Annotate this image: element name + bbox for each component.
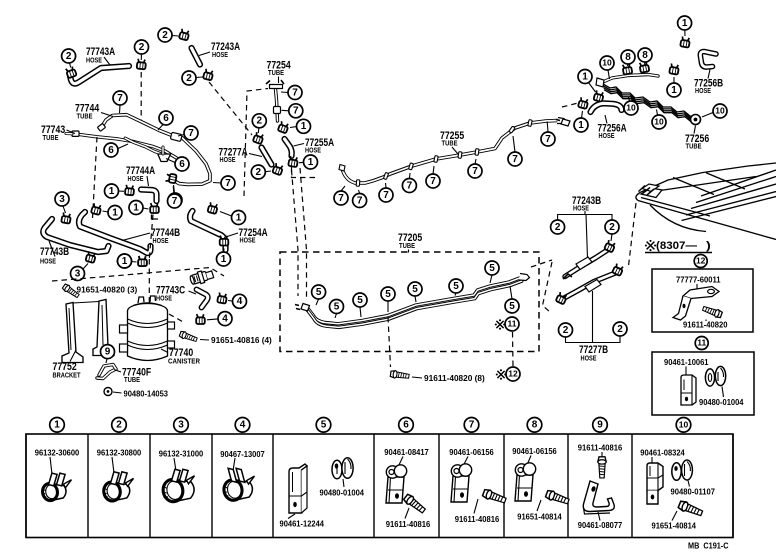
svg-text:91651-40816 (4): 91651-40816 (4) [211,335,272,345]
svg-text:10: 10 [602,58,612,68]
svg-text:7: 7 [469,420,475,431]
svg-text:1: 1 [133,202,139,213]
svg-text:8: 8 [642,50,648,61]
svg-text:10: 10 [626,103,636,113]
svg-text:7: 7 [172,196,178,207]
svg-text:96132-31000: 96132-31000 [159,449,204,459]
svg-text:TUBE: TUBE [124,375,140,384]
svg-text:5: 5 [385,289,391,300]
svg-text:9: 9 [597,420,603,431]
svg-text:11: 11 [697,338,706,348]
svg-text:MB C191-C: MB C191-C [688,541,729,551]
svg-text:HOSE: HOSE [599,131,615,140]
svg-text:10: 10 [679,420,689,430]
svg-text:2: 2 [609,222,615,233]
svg-text:11: 11 [508,319,517,329]
svg-text:3: 3 [75,268,81,279]
svg-text:7: 7 [512,154,518,165]
svg-text:7: 7 [357,195,363,206]
svg-text:3: 3 [59,194,65,205]
svg-text:91611-40820: 91611-40820 [683,320,728,330]
svg-text:91651-40820 (3): 91651-40820 (3) [77,285,138,295]
svg-text:8: 8 [532,420,538,431]
svg-text:1: 1 [671,85,677,96]
svg-text:5: 5 [453,281,459,292]
svg-text:HOSE: HOSE [220,155,236,164]
svg-text:1: 1 [582,71,588,82]
svg-text:90461-10061: 90461-10061 [664,357,709,367]
svg-text:HOSE: HOSE [128,174,144,183]
svg-text:1: 1 [109,186,115,197]
svg-text:HOSE: HOSE [153,236,169,245]
svg-text:96132-30600: 96132-30600 [35,448,80,458]
svg-text:4: 4 [237,296,243,307]
svg-text:6: 6 [163,113,169,124]
svg-text:1: 1 [221,254,227,265]
svg-text:90461-08324: 90461-08324 [640,448,685,458]
svg-text:2: 2 [257,116,263,127]
svg-text:90467-13007: 90467-13007 [220,449,265,459]
svg-text:8: 8 [625,52,631,63]
svg-text:7: 7 [292,87,298,98]
svg-text:5: 5 [489,263,495,274]
svg-text:91611-40816: 91611-40816 [578,443,623,453]
svg-text:1: 1 [301,121,307,132]
svg-text:1: 1 [112,207,118,218]
svg-text:7: 7 [472,166,478,177]
svg-text:5: 5 [357,295,363,306]
svg-text:9: 9 [105,347,111,358]
svg-text:HOSE: HOSE [240,236,256,245]
svg-text:HOSE: HOSE [305,146,321,155]
svg-text:7: 7 [117,93,123,104]
svg-text:(8307—: (8307— [656,240,697,252]
svg-text:91651-40814: 91651-40814 [652,521,697,531]
svg-text:TUBE: TUBE [43,133,59,142]
svg-text:TUBE: TUBE [77,112,93,121]
svg-text:2: 2 [555,222,561,233]
svg-text:10: 10 [654,117,664,127]
svg-text:7: 7 [225,178,231,189]
svg-text:HOSE: HOSE [86,56,102,65]
svg-text:2: 2 [66,51,72,62]
svg-text:7: 7 [430,176,436,187]
svg-text:2: 2 [139,42,145,53]
svg-text:91611-40816: 91611-40816 [455,514,500,524]
svg-text:5: 5 [321,420,327,431]
svg-text:90480-01004: 90480-01004 [699,397,744,407]
svg-text:): ) [706,240,711,252]
svg-text:90461-06156: 90461-06156 [512,446,557,456]
svg-text:3: 3 [178,420,184,431]
svg-text:90480-01004: 90480-01004 [320,488,365,498]
svg-text:96132-30800: 96132-30800 [97,448,142,458]
svg-text:2: 2 [256,167,262,178]
svg-text:5: 5 [316,287,322,298]
svg-text:CANISTER: CANISTER [168,357,201,366]
svg-text:7: 7 [188,128,194,139]
svg-text:4: 4 [222,314,228,325]
svg-text:6: 6 [403,420,409,431]
svg-text:5: 5 [509,301,515,312]
svg-text:BRACKET: BRACKET [53,371,81,380]
svg-text:HOSE: HOSE [212,50,228,59]
svg-text:TUBE: TUBE [399,241,415,250]
svg-text:TUBE: TUBE [268,68,284,77]
svg-text:2: 2 [186,73,192,84]
svg-text:5: 5 [412,284,418,295]
svg-text:10: 10 [715,106,725,116]
svg-text:91651-40814: 91651-40814 [517,512,562,522]
svg-text:1: 1 [578,120,584,131]
svg-text:1: 1 [682,18,688,29]
svg-text:4: 4 [240,420,246,431]
svg-text:1: 1 [308,157,314,168]
svg-text:1: 1 [236,212,242,223]
svg-text:2: 2 [116,420,122,431]
svg-text:HOSE: HOSE [581,354,597,363]
svg-text:6: 6 [108,145,114,156]
svg-text:90461-06156: 90461-06156 [449,447,494,457]
svg-text:2: 2 [563,325,569,336]
svg-text:77777-60011: 77777-60011 [676,275,721,285]
svg-text:90461-12244: 90461-12244 [280,519,325,529]
svg-text:2: 2 [162,30,168,41]
svg-text:HOSE: HOSE [695,86,711,95]
svg-text:91611-40816: 91611-40816 [386,519,431,529]
svg-text:HOSE: HOSE [40,257,56,266]
svg-text:TUBE: TUBE [442,139,458,148]
svg-text:6: 6 [179,159,185,170]
svg-text:91611-40820 (8): 91611-40820 (8) [424,373,485,383]
svg-text:1: 1 [122,256,128,267]
svg-text:7: 7 [545,134,551,145]
svg-text:90480-14053: 90480-14053 [124,389,169,399]
svg-text:12: 12 [508,369,518,379]
svg-text:90461-08417: 90461-08417 [384,447,429,457]
svg-text:90461-08077: 90461-08077 [578,520,623,530]
svg-text:5: 5 [334,301,340,312]
svg-text:HOSE: HOSE [156,294,172,303]
svg-text:12: 12 [696,256,706,266]
svg-text:7: 7 [407,180,413,191]
svg-text:TUBE: TUBE [686,142,702,151]
svg-text:HOSE: HOSE [573,204,589,213]
svg-text:1: 1 [54,420,60,431]
svg-text:7: 7 [293,106,299,117]
svg-text:90480-01107: 90480-01107 [671,487,716,497]
svg-text:7: 7 [383,190,389,201]
svg-text:2: 2 [617,324,623,335]
svg-text:7: 7 [338,193,344,204]
